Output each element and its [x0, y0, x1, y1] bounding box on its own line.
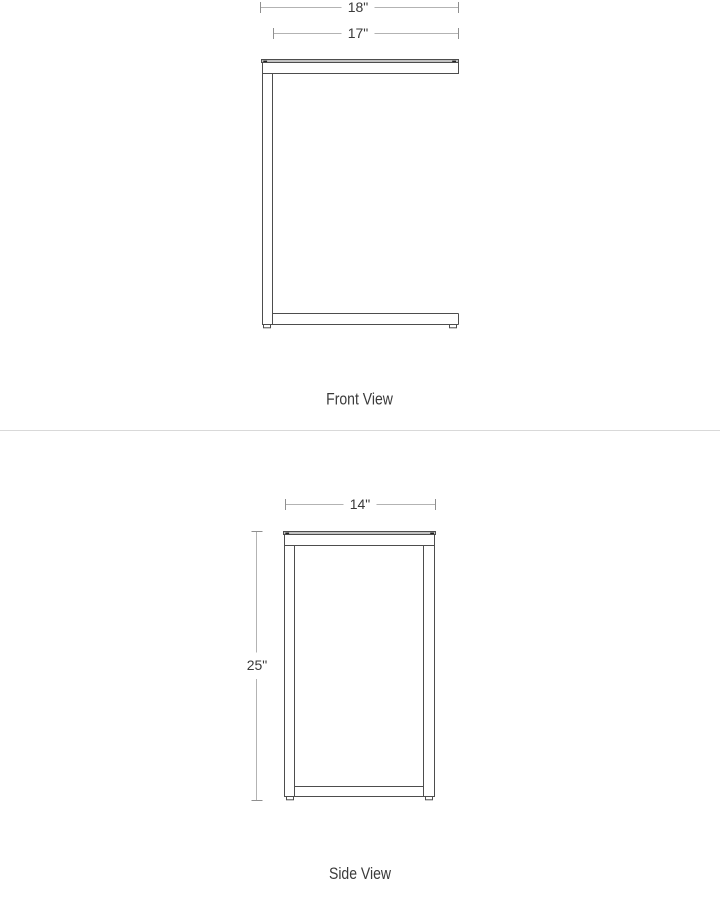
svg-text:Front View: Front View [326, 390, 394, 408]
svg-text:25": 25" [247, 657, 268, 673]
svg-text:Side View: Side View [329, 865, 392, 883]
svg-text:18": 18" [348, 0, 369, 15]
svg-text:17": 17" [348, 25, 369, 41]
svg-text:14": 14" [350, 496, 371, 512]
